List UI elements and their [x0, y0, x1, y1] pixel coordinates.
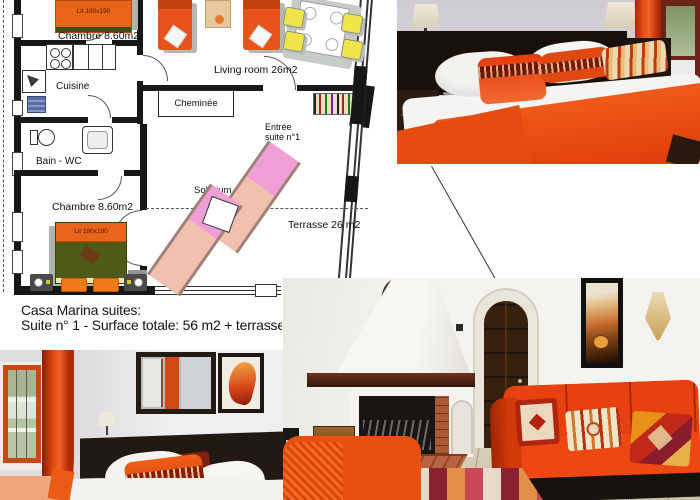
kilim-pillow — [515, 398, 560, 447]
pillow-inner — [520, 403, 554, 441]
lamp-dot — [134, 278, 143, 287]
mirror — [136, 352, 216, 414]
plan-chair — [341, 38, 364, 60]
plan-fireplace-box: Cheminée — [158, 90, 234, 117]
artwork-fruit — [593, 335, 609, 349]
toilet-icon — [30, 130, 38, 145]
bed-throw — [80, 245, 100, 264]
faucet — [27, 75, 39, 87]
brick-column — [435, 396, 449, 454]
sink-icon — [22, 70, 46, 93]
sofa-back — [243, 0, 280, 9]
kilim-throw — [319, 438, 389, 500]
plan-bed-top: Lit 180x190 — [55, 0, 132, 33]
mirror-window-reflection — [143, 359, 163, 407]
armchair-orange — [283, 436, 421, 500]
pillow-orange — [477, 53, 547, 105]
table-bowl — [215, 15, 224, 24]
plan-window — [12, 14, 23, 38]
burner — [61, 48, 71, 58]
room-label-bathroom: Bain - WC — [36, 156, 82, 167]
plan-chair — [283, 30, 306, 52]
plan-wall — [14, 117, 140, 123]
burner — [50, 59, 60, 69]
photo-bedroom-twin — [397, 0, 700, 164]
photo-living-room — [283, 278, 700, 500]
plan-sofa — [243, 0, 280, 50]
plan-chair — [283, 6, 306, 28]
plan-window — [12, 250, 23, 274]
window-grille — [16, 370, 17, 458]
caption: Casa Marina suites: Suite n° 1 - Surface… — [21, 303, 282, 337]
pillow-medallion — [586, 422, 601, 437]
door-knob — [518, 379, 522, 383]
pillow-diamond — [529, 414, 546, 431]
wall-switch — [456, 324, 463, 331]
wall-lamp-left — [411, 4, 441, 28]
plan-window — [12, 100, 23, 116]
lamp-accent — [127, 280, 131, 284]
table-lamp-right — [603, 2, 639, 28]
table-lamp — [98, 412, 116, 426]
window-bar — [8, 428, 36, 432]
sofa-back — [158, 0, 192, 9]
sofa-pillow — [249, 25, 273, 49]
plan-door-arc — [98, 176, 122, 200]
window-grille — [26, 370, 27, 458]
shower-tray — [87, 131, 108, 149]
room-label-kitchen: Cuisine — [56, 81, 89, 92]
caption-line-2: Suite n° 1 - Surface totale: 56 m2 + ter… — [21, 318, 282, 333]
counter-divider — [102, 45, 103, 69]
lamp-accent — [46, 280, 50, 284]
pillow-band — [478, 61, 545, 79]
bed-headband: Lit 180x190 — [56, 223, 126, 242]
entrance-label-1: Entrée — [265, 122, 292, 132]
window-glass — [8, 370, 36, 458]
appliance-icon — [27, 96, 46, 113]
striped-pillow — [565, 407, 622, 452]
bed-pillow — [93, 278, 119, 292]
counter-divider — [88, 45, 89, 69]
lamp-dot — [34, 278, 43, 287]
floor-plan: Cheminée Lit 180x190 Chambre 8.60m2 — [0, 0, 400, 298]
nightstand-icon — [124, 274, 147, 291]
stove-icon — [46, 44, 73, 70]
plan-wall-post — [344, 175, 359, 202]
wall-sconce — [645, 292, 671, 340]
photo-bedroom-double — [0, 350, 283, 500]
flower-artwork — [218, 353, 264, 413]
window-bar — [8, 398, 36, 402]
entrance-label-2: suite n°1 — [265, 132, 300, 142]
bed-pillow — [61, 278, 87, 292]
mirror-wall-reflection — [181, 357, 211, 409]
room-label-living: Living room 26m2 — [214, 64, 297, 76]
flower-petal — [224, 359, 259, 406]
burner — [50, 48, 60, 58]
counter-icon — [73, 44, 116, 70]
plan-bed-bottom: Lit 180x190 — [55, 222, 127, 284]
mantel-shelf — [307, 373, 475, 387]
lamp-stem — [106, 426, 108, 435]
brochure-collage: Cheminée Lit 180x190 Chambre 8.60m2 — [0, 0, 700, 500]
plan-coffee-table — [205, 0, 231, 28]
annotation-line — [431, 166, 497, 281]
plan-sofa — [158, 0, 192, 50]
plan-door-arc — [143, 55, 168, 81]
plate — [324, 37, 339, 52]
sofa-pillow — [164, 25, 188, 49]
bed-size-label: Lit 180x190 — [56, 8, 131, 15]
plan-glazing-post — [255, 284, 277, 297]
room-label-bedroom-top: Chambre 8.60m2 — [58, 30, 139, 42]
burner — [61, 59, 71, 69]
nightstand-icon — [30, 274, 53, 291]
bed-size-label: Lit 180x190 — [56, 228, 126, 235]
fireplace-hood — [335, 278, 471, 376]
abstract-artwork — [581, 278, 623, 368]
plan-wall-living — [297, 85, 358, 91]
plan-window — [12, 212, 23, 242]
shower-icon — [82, 126, 113, 154]
pillow-diamond — [647, 425, 672, 450]
plan-door-arc — [88, 95, 111, 118]
caption-line-1: Casa Marina suites: — [21, 303, 282, 318]
side-niche — [451, 400, 473, 454]
terrace-label: Terrasse 26 m2 — [288, 219, 360, 231]
mirror-curtain-reflection — [165, 357, 179, 409]
room-label-bedroom-bottom: Chambre 8.60m2 — [52, 201, 133, 213]
toilet-bowl — [38, 129, 55, 146]
patchwork-pillow — [629, 411, 692, 467]
plan-wall-terrace-left — [140, 124, 147, 210]
plan-boundary-line — [3, 0, 4, 292]
plan-chair — [341, 12, 364, 34]
fireplace-label: Cheminée — [174, 98, 217, 109]
